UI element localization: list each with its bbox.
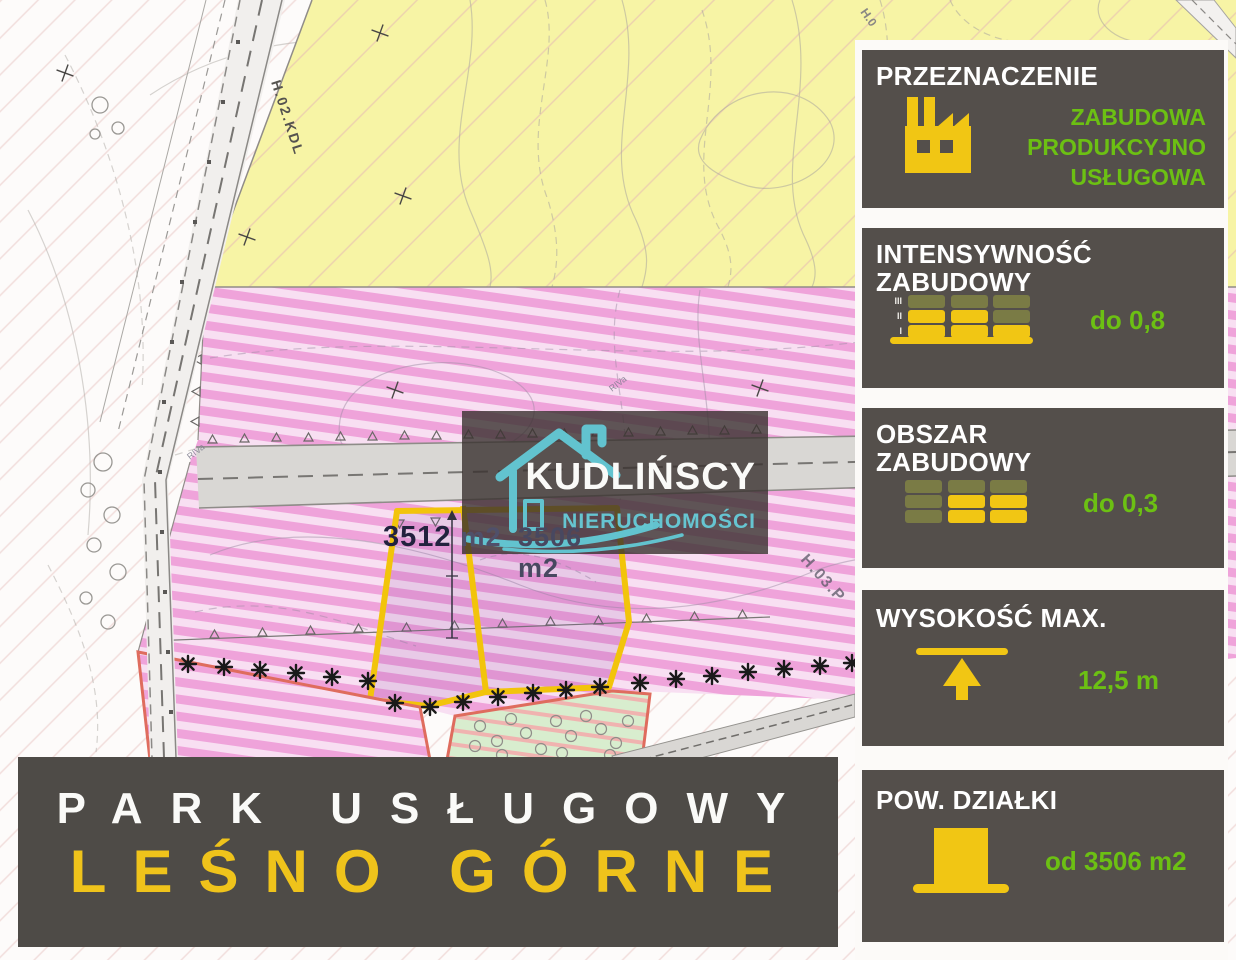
panel-value: 12,5 m: [1078, 665, 1159, 696]
plot2-area-label: 3506 m2: [518, 522, 582, 584]
panel-title: INTENSYWNOŚĆZABUDOWY: [876, 240, 1092, 296]
panel-title: POW. DZIAŁKI: [876, 786, 1057, 814]
panel-title-line1: INTENSYWNOŚĆ: [876, 239, 1092, 269]
panel-title-line2: ZABUDOWY: [876, 447, 1032, 477]
panel-intensywnosc-zabudowy: INTENSYWNOŚĆZABUDOWY III II I do 0,8: [862, 228, 1224, 388]
panel-title: PRZEZNACZENIE: [876, 62, 1098, 90]
value-line: ZABUDOWA: [1027, 102, 1206, 132]
level-label: II: [880, 310, 902, 323]
banner-line2: LEŚNO GÓRNE: [18, 837, 838, 906]
listing-graphic: H.02.KDL H.03.P H.0 RIVa RIVa KUDLIŃSCY …: [0, 0, 1236, 960]
title-banner: PARK USŁUGOWY LEŚNO GÓRNE: [18, 757, 838, 947]
plot1-area-value: 3512: [383, 521, 452, 553]
value-line: USŁUGOWA: [1027, 162, 1206, 192]
panel-title-line2: ZABUDOWY: [876, 267, 1032, 297]
plot1-area-label: 3512m2: [383, 521, 502, 554]
panel-value: od 3506 m2: [1045, 846, 1187, 877]
plot-block-icon: [913, 828, 1009, 894]
plot1-area-unit: m2: [461, 522, 502, 552]
panel-title: OBSZARZABUDOWY: [876, 420, 1032, 476]
value-line: PRODUKCYJNO: [1027, 132, 1206, 162]
agency-watermark: KUDLIŃSCY NIERUCHOMOŚCI: [462, 411, 768, 554]
panel-value-lines: ZABUDOWA PRODUKCYJNO USŁUGOWA: [1027, 102, 1206, 192]
panel-title-line1: OBSZAR: [876, 419, 988, 449]
panel-value: do 0,3: [1083, 488, 1158, 519]
watermark-brand: KUDLIŃSCY: [525, 458, 756, 496]
panel-obszar-zabudowy: OBSZARZABUDOWY do 0,3: [862, 408, 1224, 568]
panel-wysokosc-max: WYSOKOŚĆ MAX. 12,5 m: [862, 590, 1224, 746]
level-label: III: [880, 295, 902, 308]
factory-icon: [905, 95, 973, 175]
panel-pow-dzialki: POW. DZIAŁKI od 3506 m2: [862, 770, 1224, 942]
watermark-subtitle: NIERUCHOMOŚCI: [562, 510, 756, 534]
panel-title: WYSOKOŚĆ MAX.: [876, 604, 1107, 632]
panel-value: do 0,8: [1090, 305, 1165, 336]
banner-line1: PARK USŁUGOWY: [18, 784, 838, 834]
panel-przeznaczenie: PRZEZNACZENIE ZABUDOWA PRODUKCYJNO USŁUG…: [862, 50, 1224, 208]
max-height-arrow-icon: [916, 648, 1008, 702]
